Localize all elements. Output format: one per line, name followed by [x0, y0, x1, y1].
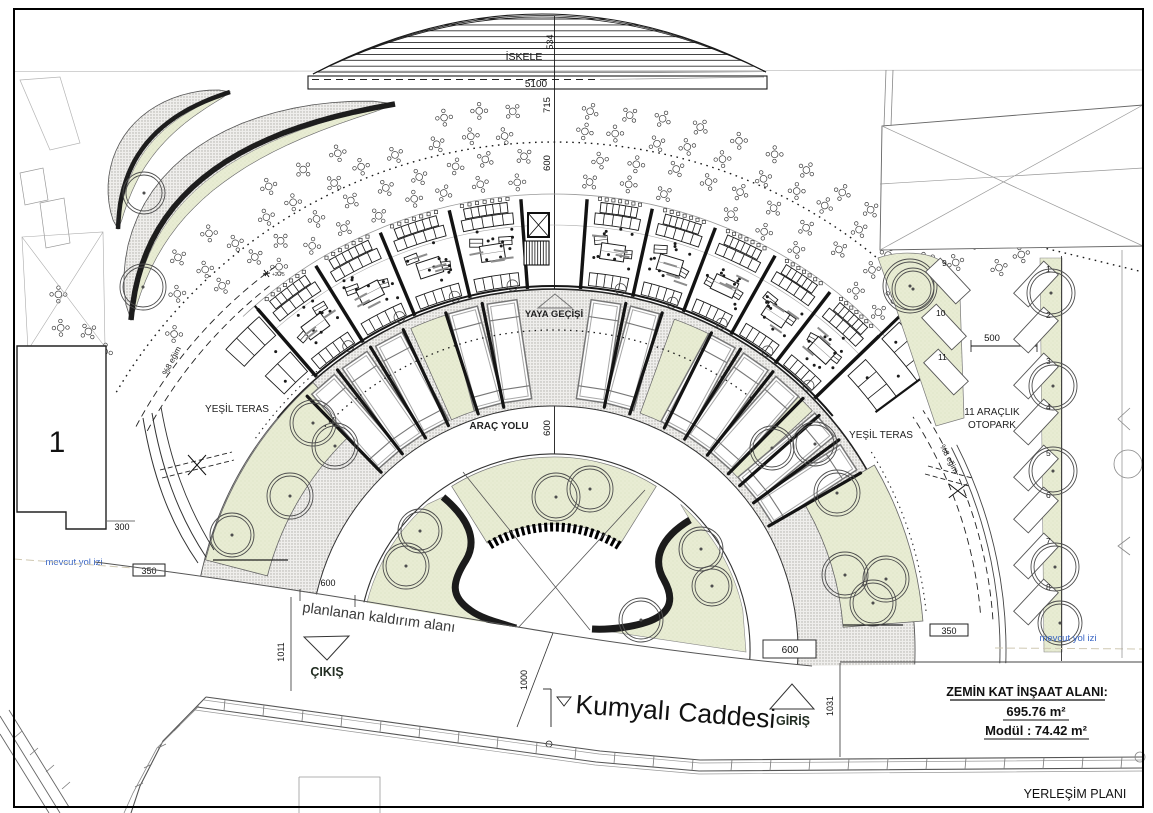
svg-text:3: 3: [1046, 356, 1051, 366]
svg-text:600: 600: [782, 645, 799, 656]
svg-text:600: 600: [542, 155, 553, 171]
svg-text:5100: 5100: [525, 79, 548, 90]
svg-text:350: 350: [941, 626, 956, 636]
svg-text:5: 5: [1046, 448, 1051, 458]
svg-text:GİRİŞ: GİRİŞ: [776, 713, 810, 728]
svg-text:1011: 1011: [276, 642, 286, 661]
svg-text:300: 300: [114, 522, 129, 532]
svg-text:YEŞİL TERAS: YEŞİL TERAS: [205, 402, 269, 415]
svg-text:10: 10: [936, 308, 946, 318]
svg-text:+2.75: +2.75: [272, 272, 285, 278]
svg-text:Modül : 74.42 m²: Modül : 74.42 m²: [985, 723, 1088, 738]
svg-text:ZEMİN KAT İNŞAAT ALANI:: ZEMİN KAT İNŞAAT ALANI:: [946, 684, 1108, 699]
svg-text:534: 534: [545, 34, 555, 49]
svg-text:İSKELE: İSKELE: [506, 50, 543, 63]
svg-text:ARAÇ YOLU: ARAÇ YOLU: [469, 421, 528, 432]
svg-text:600: 600: [320, 578, 335, 588]
svg-text:715: 715: [542, 97, 553, 113]
svg-text:600: 600: [542, 420, 553, 436]
svg-text:11 ARAÇLIK: 11 ARAÇLIK: [964, 407, 1020, 418]
svg-text:500: 500: [984, 333, 1000, 344]
svg-text:1000: 1000: [519, 670, 529, 690]
svg-text:11: 11: [938, 352, 947, 362]
svg-text:YERLEŞİM PLANI: YERLEŞİM PLANI: [1024, 787, 1127, 801]
svg-text:YAYA GEÇİŞİ: YAYA GEÇİŞİ: [525, 309, 583, 320]
svg-text:1: 1: [49, 426, 66, 459]
svg-text:mevcut yol izi: mevcut yol izi: [1039, 633, 1096, 644]
svg-text:9: 9: [942, 258, 947, 268]
svg-text:OTOPARK: OTOPARK: [968, 420, 1016, 431]
svg-text:350: 350: [141, 566, 156, 576]
svg-text:ÇIKIŞ: ÇIKIŞ: [310, 665, 343, 679]
svg-text:1031: 1031: [825, 696, 835, 716]
svg-text:695.76 m²: 695.76 m²: [1006, 704, 1066, 719]
svg-text:2: 2: [1046, 310, 1051, 320]
svg-text:YEŞİL TERAS: YEŞİL TERAS: [849, 428, 913, 441]
